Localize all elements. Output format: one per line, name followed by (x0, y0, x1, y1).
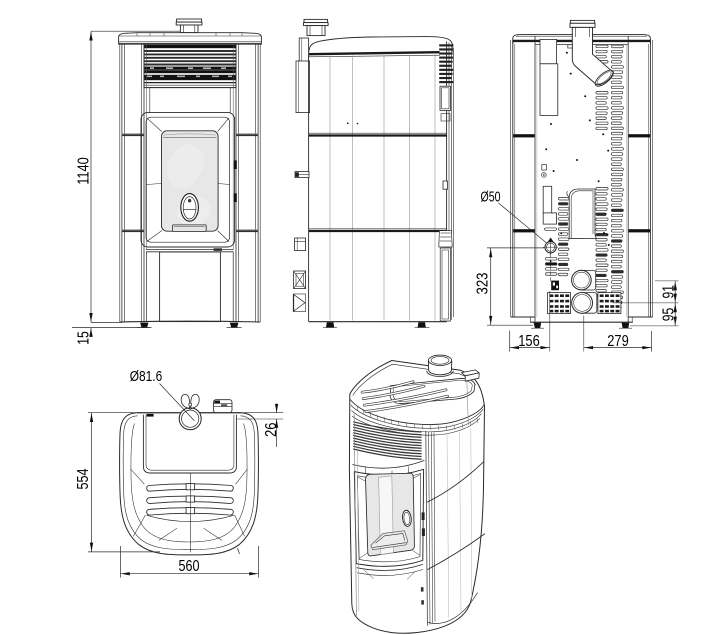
svg-text:554: 554 (75, 468, 92, 489)
svg-text:Ø81.6: Ø81.6 (130, 368, 163, 385)
svg-text:279: 279 (607, 333, 629, 350)
svg-text:95: 95 (661, 308, 678, 322)
svg-text:15: 15 (76, 331, 93, 345)
svg-text:156: 156 (518, 333, 540, 350)
svg-text:1140: 1140 (76, 157, 93, 185)
svg-text:Ø50: Ø50 (481, 189, 501, 206)
svg-text:91: 91 (661, 285, 678, 299)
svg-text:560: 560 (179, 558, 200, 575)
svg-text:26: 26 (263, 422, 280, 437)
svg-text:323: 323 (475, 272, 492, 294)
